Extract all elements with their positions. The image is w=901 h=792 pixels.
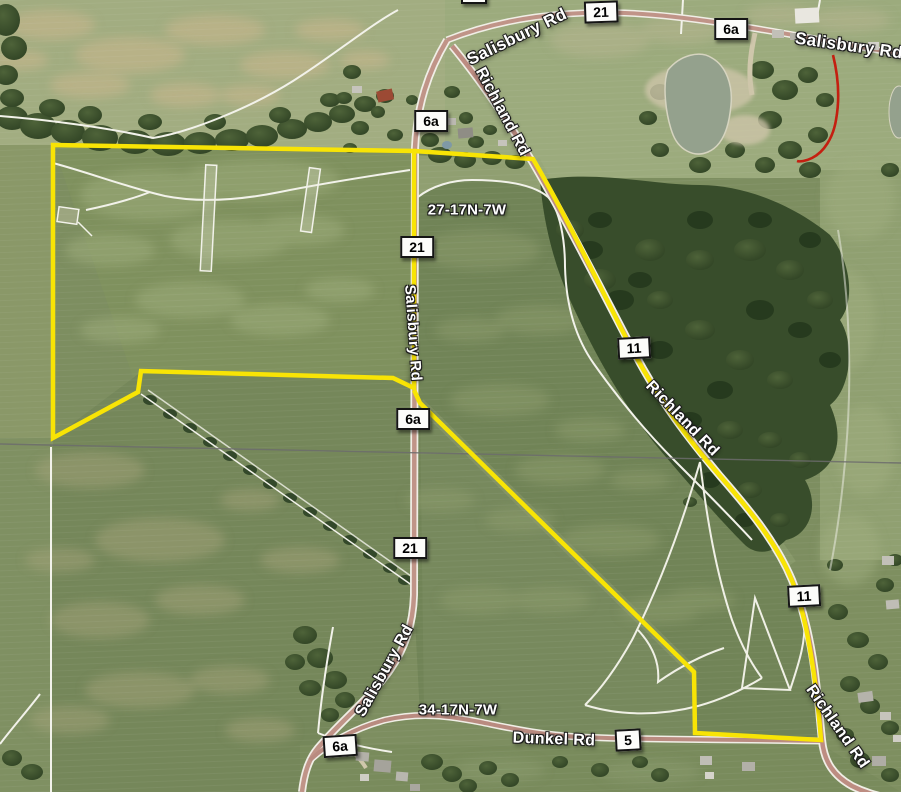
aerial-map-viewport[interactable]: 21 6a 6a 21 6a 11 21 11 6a 5 Salisbury R… <box>0 0 901 792</box>
aerial-imagery <box>0 0 901 792</box>
